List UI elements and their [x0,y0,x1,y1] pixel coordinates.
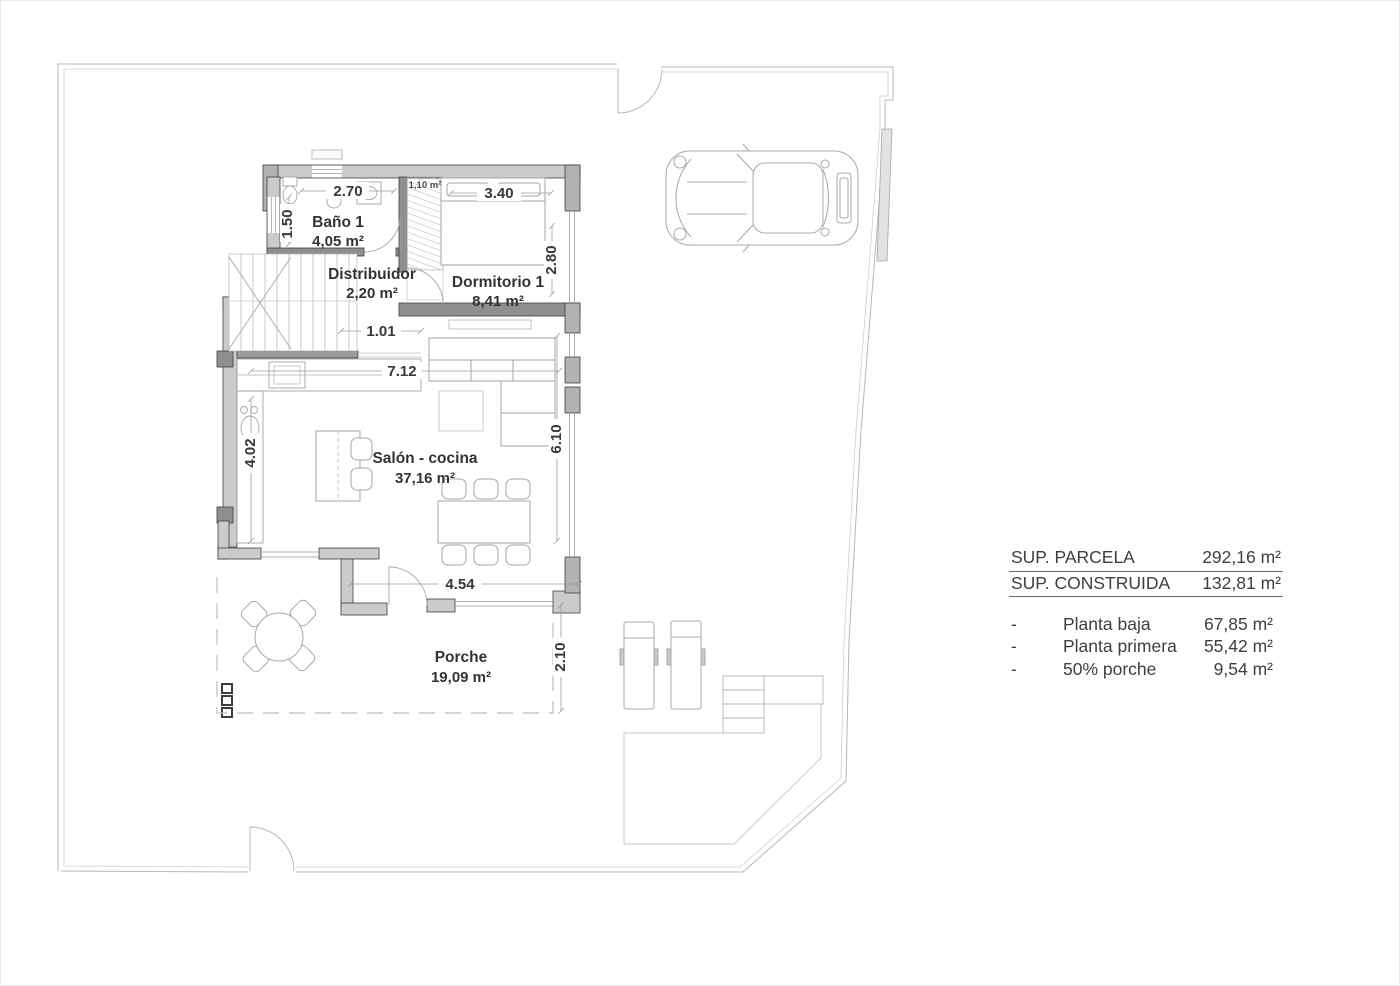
breakdown-label: Planta primera [1063,638,1204,656]
room-label-bano: Baño 1 [312,214,364,231]
bullet-dash: - [1011,616,1029,634]
breakdown-row-porche: - 50% porche 9,54 m² [1009,658,1283,681]
summary-label: SUP. CONSTRUIDA [1011,575,1170,593]
room-area-bano: 4,05 m² [312,233,364,250]
dim-dorm-height: 2.80 [543,245,560,274]
summary-value: 132,81 m² [1202,575,1281,593]
summary-row-construida: SUP. CONSTRUIDA 132,81 m² [1009,573,1283,598]
exterior-steps [723,676,823,733]
bedroom-shelf [449,320,531,329]
dim-closet-area: 1,10 m² [409,180,442,191]
floorplan-page: 2.70 1.50 1,10 m² 3.40 2.80 1.01 7.12 4.… [0,0,1400,986]
driveway-gate [618,69,662,113]
breakdown-label: Planta baja [1063,616,1204,634]
dim-salon-height: 6.10 [548,424,565,453]
pedestrian-gate [250,827,294,871]
kitchen-island [316,431,372,501]
room-label-porche: Porche [435,649,488,666]
room-area-salon: 37,16 m² [395,470,455,487]
summary-label: SUP. PARCELA [1011,549,1135,567]
dim-porche-height: 2.10 [552,642,569,671]
breakdown-row-planta-baja: - Planta baja 67,85 m² [1009,613,1283,636]
dim-salon-width: 7.12 [387,363,416,380]
dining-table [438,479,530,565]
breakdown-label: 50% porche [1063,661,1214,679]
dim-bano-height: 1.50 [279,209,296,238]
fence-wall-segment [877,129,892,261]
sofa [429,338,555,446]
dim-bano-width: 2.70 [333,183,362,200]
summary-breakdown: - Planta baja 67,85 m² - Planta primera … [1009,613,1283,681]
sun-loungers [620,621,705,709]
dim-porche-width: 4.54 [445,576,475,593]
room-label-dormitorio: Dormitorio 1 [452,274,545,291]
porch-table [239,598,318,674]
patio-outline [624,704,821,844]
room-label-distribuidor: Distribuidor [328,266,416,283]
room-area-distribuidor: 2,20 m² [346,285,398,302]
breakdown-value: 55,42 m² [1204,638,1273,656]
dim-dorm-width: 3.40 [484,185,513,202]
summary-row-parcela: SUP. PARCELA 292,16 m² [1009,547,1283,572]
bullet-dash: - [1011,638,1029,656]
entry-door [389,567,427,605]
surface-summary-table: SUP. PARCELA 292,16 m² SUP. CONSTRUIDA 1… [1009,547,1283,681]
room-label-salon: Salón - cocina [372,450,477,467]
breakdown-value: 67,85 m² [1204,616,1273,634]
room-area-dormitorio: 8,41 m² [472,293,524,310]
floorplan-drawing: 2.70 1.50 1,10 m² 3.40 2.80 1.01 7.12 4.… [1,1,1400,986]
bullet-dash: - [1011,661,1029,679]
breakdown-row-planta-primera: - Planta primera 55,42 m² [1009,636,1283,659]
dim-hall: 1.01 [366,323,395,340]
utility-meters [222,684,232,717]
breakdown-value: 9,54 m² [1214,661,1273,679]
summary-value: 292,16 m² [1202,549,1281,567]
room-area-porche: 19,09 m² [431,669,491,686]
car [666,144,858,252]
dim-kitchen-height: 4.02 [242,438,259,467]
